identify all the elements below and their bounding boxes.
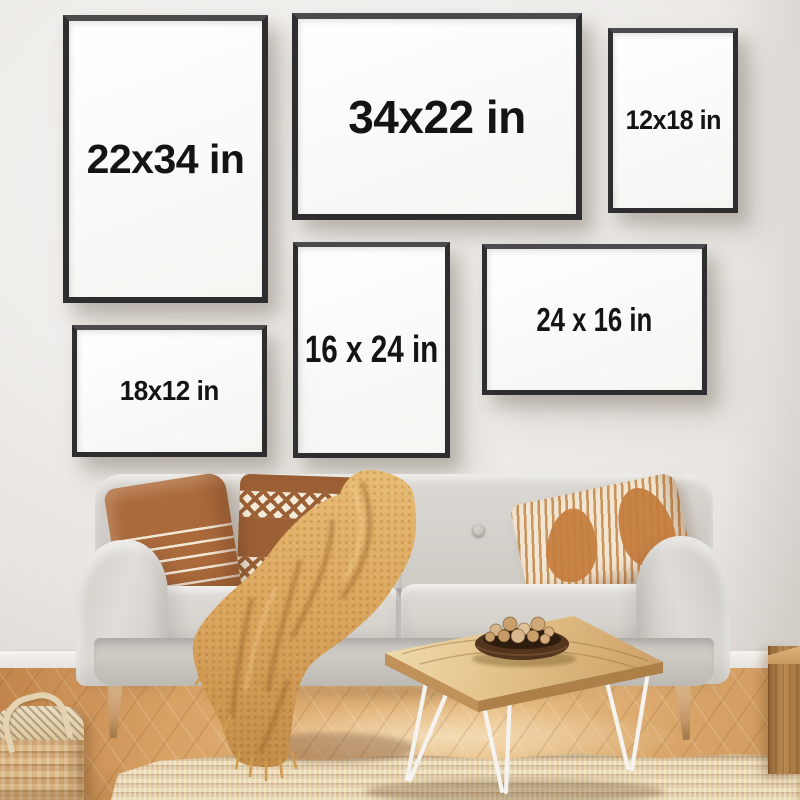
- floor-shadows: [245, 733, 665, 800]
- room-scene: 22x34 in 34x22 in 12x18 in 16 x 24 in 24…: [0, 0, 800, 800]
- throw-blanket: [193, 470, 416, 780]
- scene-overlay: [0, 0, 800, 800]
